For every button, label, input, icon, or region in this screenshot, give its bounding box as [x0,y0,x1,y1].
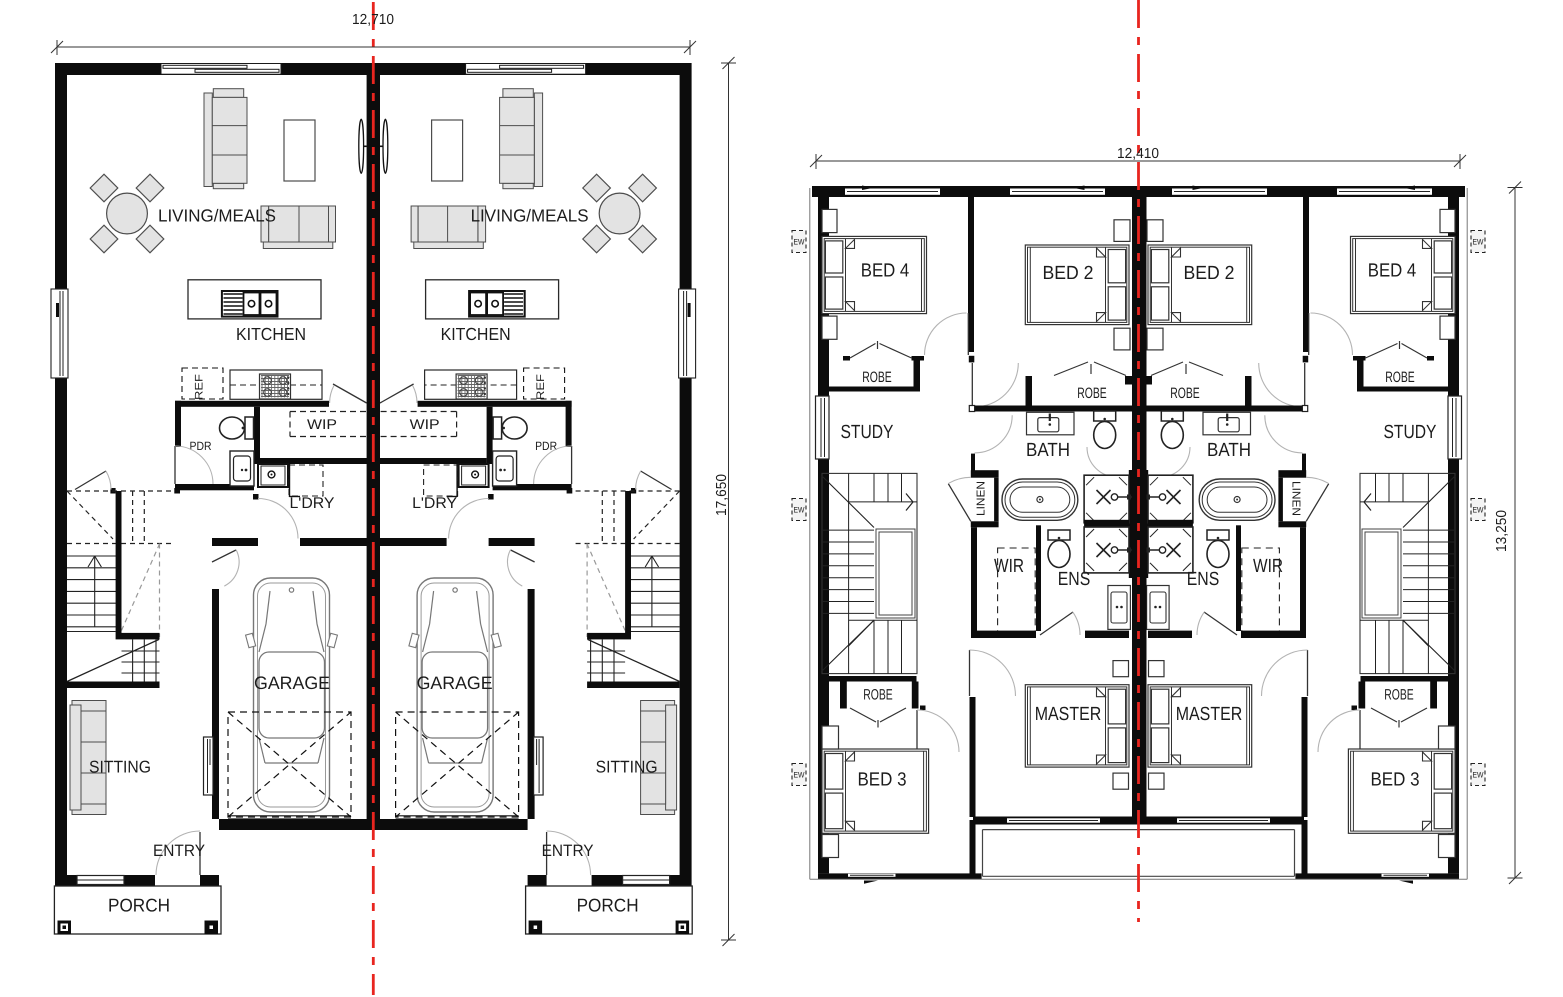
svg-text:LIVING/MEALS: LIVING/MEALS [471,206,589,226]
svg-text:SITTING: SITTING [596,758,658,777]
svg-text:BED 2: BED 2 [1043,263,1094,284]
svg-text:GARAGE: GARAGE [254,673,330,693]
svg-text:L'DRY: L'DRY [412,495,457,512]
svg-text:WIR: WIR [1253,556,1283,577]
svg-text:STUDY: STUDY [841,422,894,443]
svg-text:SITTING: SITTING [89,758,151,777]
svg-text:ENS: ENS [1187,569,1220,590]
svg-text:BATH: BATH [1026,440,1070,461]
svg-text:BED 3: BED 3 [1371,770,1420,791]
svg-text:GARAGE: GARAGE [417,673,493,693]
svg-text:EW: EW [794,238,805,247]
svg-text:ENTRY: ENTRY [542,842,594,860]
svg-text:EW: EW [1473,771,1484,780]
svg-text:ROBE: ROBE [1077,385,1107,402]
svg-text:ENTRY: ENTRY [153,842,205,860]
svg-text:BATH: BATH [1207,440,1251,461]
svg-text:BED 4: BED 4 [1368,261,1417,282]
svg-text:BED 2: BED 2 [1184,263,1235,284]
svg-text:KITCHEN: KITCHEN [236,324,306,344]
svg-text:LINEN: LINEN [976,481,988,516]
svg-text:PORCH: PORCH [108,895,170,916]
svg-text:PORCH: PORCH [577,895,639,916]
svg-text:WIR: WIR [994,556,1024,577]
svg-text:BED 3: BED 3 [858,770,907,791]
svg-text:EW: EW [1473,238,1484,247]
svg-text:MASTER: MASTER [1035,704,1102,725]
svg-text:REF: REF [194,374,206,400]
svg-text:ROBE: ROBE [1385,369,1415,386]
svg-text:WIP: WIP [307,416,337,432]
svg-text:ROBE: ROBE [863,687,893,704]
svg-text:EW: EW [794,771,805,780]
svg-text:EW: EW [794,506,805,515]
svg-text:MASTER: MASTER [1176,704,1243,725]
svg-text:PDR: PDR [535,439,557,453]
svg-text:KITCHEN: KITCHEN [441,324,511,344]
svg-text:ROBE: ROBE [862,369,892,386]
svg-text:L'DRY: L'DRY [290,495,335,512]
svg-text:STUDY: STUDY [1384,422,1437,443]
svg-text:EW: EW [1473,506,1484,515]
svg-text:LIVING/MEALS: LIVING/MEALS [158,206,276,226]
svg-text:ENS: ENS [1058,569,1091,590]
svg-text:12,410: 12,410 [1117,146,1159,162]
svg-text:17,650: 17,650 [714,474,730,516]
svg-text:BED 4: BED 4 [861,261,910,282]
svg-text:12,710: 12,710 [352,12,394,28]
svg-text:13,250: 13,250 [1494,510,1510,552]
svg-text:ROBE: ROBE [1170,385,1200,402]
svg-text:LINEN: LINEN [1290,481,1302,516]
svg-text:WIP: WIP [410,416,440,432]
svg-text:REF: REF [535,374,547,400]
svg-text:ROBE: ROBE [1384,687,1414,704]
